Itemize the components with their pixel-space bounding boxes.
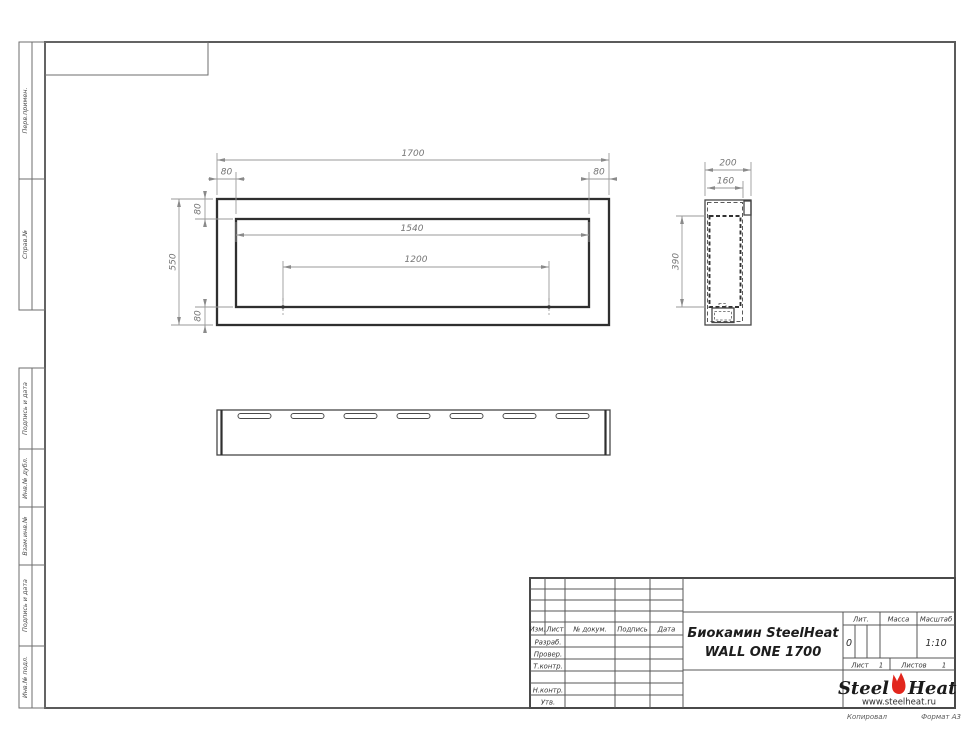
row-tkontr: Т.контр. <box>533 663 562 671</box>
drawing-frame <box>45 42 955 708</box>
margin-box: Инв.№ подл. <box>19 646 45 708</box>
lit-label: Лит. <box>852 616 869 624</box>
sheets-value: 1 <box>942 662 946 670</box>
front-view: 1700 80 80 1540 12 <box>169 149 618 333</box>
col-doc: № докум. <box>572 626 607 634</box>
dim-inner-width: 1540 <box>236 222 589 242</box>
margin-box: Инв.№ дубл. <box>19 449 45 507</box>
row-razrab: Разраб. <box>535 639 562 647</box>
dim-label: 200 <box>719 159 736 169</box>
top-left-stamp-box <box>45 42 208 75</box>
dim-label: 1540 <box>401 224 424 234</box>
row-prover: Провер. <box>534 651 562 659</box>
footer-format: Формат А3 <box>921 713 961 721</box>
drawing-sheet: Перв.примен. Справ.№ Подпись и дата Инв.… <box>0 0 970 749</box>
doc-title-line2: WALL ONE 1700 <box>705 645 822 660</box>
dim-label: 1200 <box>405 255 428 265</box>
vent-slots <box>238 414 589 419</box>
col-sign: Подпись <box>617 626 648 634</box>
side-burner-hidden <box>715 312 732 321</box>
margin-box: Справ.№ <box>19 179 45 310</box>
row-nkontr: Н.контр. <box>533 687 563 695</box>
vent-slot <box>291 414 324 419</box>
mount-point <box>547 298 550 315</box>
sheets-label: Листов <box>900 662 926 670</box>
mass-label: Масса <box>888 616 910 624</box>
margin-box-label: Справ.№ <box>21 230 29 259</box>
bottom-contour <box>217 410 610 455</box>
margin-box-label: Подпись и дата <box>21 382 29 435</box>
dim-label: 550 <box>169 253 179 270</box>
margin-box: Подпись и дата <box>19 368 45 449</box>
dim-margin-bottom: 80 <box>194 299 234 333</box>
lit-value: 0 <box>846 638 852 649</box>
vent-slot <box>238 414 271 419</box>
scale-value: 1:10 <box>925 638 946 649</box>
steelheat-logo: Steel Heat www.steelheat.ru <box>838 673 957 708</box>
sheet-value: 1 <box>879 662 883 670</box>
vent-slot <box>344 414 377 419</box>
dim-label: 80 <box>593 168 605 178</box>
margin-box-label: Взам.инв.№ <box>21 516 29 556</box>
side-view: 200 160 390 <box>672 159 752 326</box>
col-list: Лист <box>545 626 564 634</box>
title-block-border <box>530 578 955 708</box>
margin-box: Подпись и дата <box>19 565 45 646</box>
margin-box-label: Инв.№ подл. <box>21 656 29 698</box>
dim-total-width: 1700 <box>217 149 609 195</box>
vent-slot <box>450 414 483 419</box>
sheet-label: Лист <box>850 662 869 670</box>
bottom-view <box>217 410 610 455</box>
margin-box-label: Инв.№ дубл. <box>21 457 29 499</box>
title-block: Изм. Лист № докум. Подпись Дата Разраб. … <box>530 578 958 708</box>
margin-column: Перв.примен. Справ.№ Подпись и дата Инв.… <box>19 42 45 708</box>
margin-box-label: Перв.примен. <box>21 88 29 134</box>
dim-label: 80 <box>221 168 233 178</box>
vent-slot <box>503 414 536 419</box>
row-utv: Утв. <box>541 699 555 707</box>
logo-steel-text: Steel <box>838 678 889 699</box>
logo-url: www.steelheat.ru <box>862 698 936 708</box>
dim-side-height: 390 <box>672 216 707 307</box>
dim-margin-right: 80 <box>581 168 617 215</box>
dim-label: 80 <box>194 203 204 215</box>
dim-label: 80 <box>194 310 204 322</box>
dim-margin-left: 80 <box>208 168 245 215</box>
flame-icon <box>892 673 906 695</box>
margin-box-label: Подпись и дата <box>21 579 29 632</box>
side-bracket <box>744 201 751 215</box>
side-inner-hidden-contour <box>710 216 741 307</box>
dim-margin-top: 80 <box>194 191 234 227</box>
col-date: Дата <box>657 626 676 634</box>
col-izm: Изм. <box>530 626 546 634</box>
logo-heat-text: Heat <box>907 678 957 699</box>
drawing-canvas: Перв.примен. Справ.№ Подпись и дата Инв.… <box>0 0 970 749</box>
sheet-frame <box>45 42 955 708</box>
sheet-footer: Копировал Формат А3 <box>847 713 961 721</box>
footer-copied: Копировал <box>847 713 888 721</box>
dim-label: 390 <box>672 253 682 270</box>
dim-inner-depth: 160 <box>707 177 743 199</box>
vent-slot <box>556 414 589 419</box>
dim-total-height: 550 <box>169 199 214 325</box>
margin-box: Перв.примен. <box>19 42 45 179</box>
margin-box: Взам.инв.№ <box>19 507 45 565</box>
dim-label: 1700 <box>402 149 425 159</box>
dim-label: 160 <box>717 177 734 187</box>
doc-title-line1: Биокамин SteelHeat <box>687 626 839 641</box>
mount-point <box>281 298 284 315</box>
scale-label: Масштаб <box>920 616 952 624</box>
vent-slot <box>397 414 430 419</box>
